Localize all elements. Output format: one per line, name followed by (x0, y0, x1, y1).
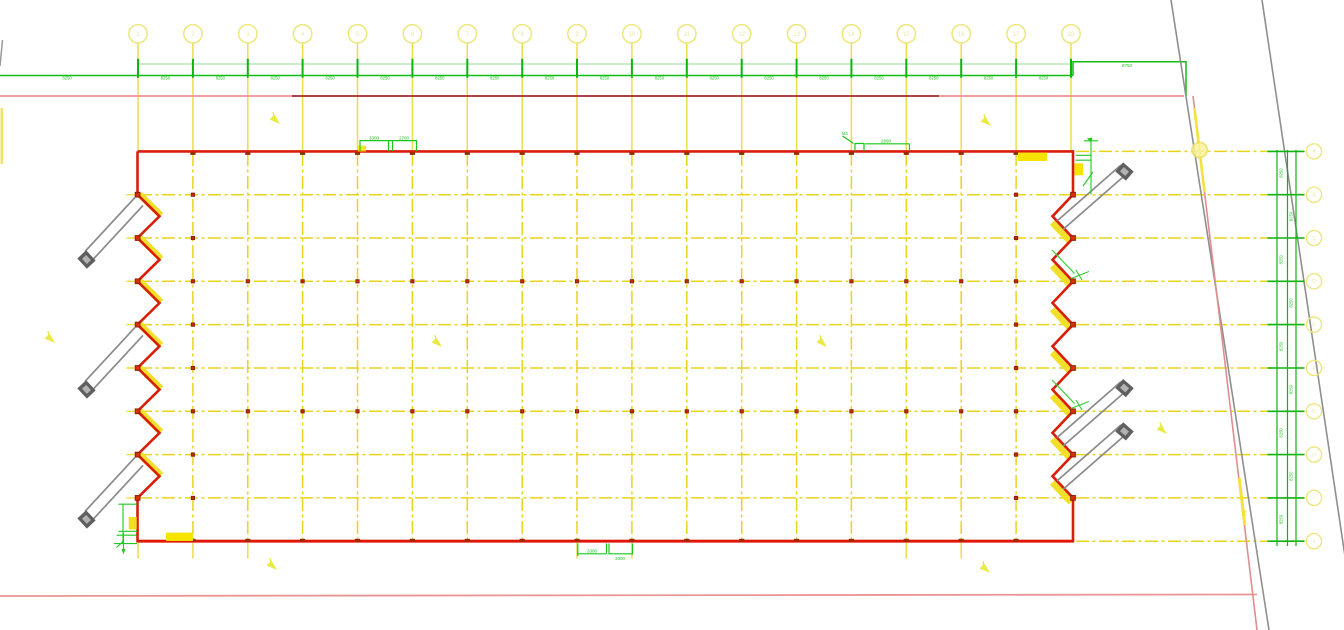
svg-text:8250: 8250 (490, 76, 500, 81)
svg-text:3300: 3300 (369, 136, 380, 141)
svg-text:C: C (1312, 236, 1316, 242)
svg-text:8250: 8250 (1279, 254, 1284, 264)
svg-text:18: 18 (1068, 32, 1075, 38)
svg-text:F: F (1312, 366, 1315, 372)
svg-text:1: 1 (136, 32, 140, 38)
svg-text:8250: 8250 (435, 76, 445, 81)
svg-text:8250: 8250 (929, 76, 939, 81)
svg-text:8250: 8250 (710, 76, 720, 81)
svg-text:3300: 3300 (587, 549, 598, 554)
svg-text:6: 6 (411, 32, 415, 38)
svg-text:8250: 8250 (271, 76, 281, 81)
svg-text:2700: 2700 (399, 136, 410, 141)
svg-text:8250: 8250 (62, 76, 72, 81)
svg-text:8750: 8750 (1122, 63, 1133, 68)
svg-text:3: 3 (246, 32, 250, 38)
svg-text:8250: 8250 (1289, 211, 1294, 221)
svg-text:4: 4 (301, 32, 305, 38)
svg-text:A: A (1312, 149, 1316, 155)
svg-text:8250: 8250 (1289, 298, 1294, 308)
svg-text:8250: 8250 (655, 76, 665, 81)
svg-text:D: D (1312, 279, 1316, 285)
svg-text:8250: 8250 (600, 76, 610, 81)
svg-text:9: 9 (575, 32, 579, 38)
svg-text:2: 2 (191, 32, 195, 38)
svg-text:8250: 8250 (874, 76, 884, 81)
svg-text:8250: 8250 (1279, 168, 1284, 178)
svg-text:14: 14 (848, 32, 855, 38)
svg-text:11: 11 (684, 32, 691, 38)
svg-text:8250: 8250 (1279, 428, 1284, 438)
svg-text:8250: 8250 (764, 76, 774, 81)
svg-text:16: 16 (958, 32, 965, 38)
svg-text:8250: 8250 (984, 76, 994, 81)
svg-text:5: 5 (356, 32, 360, 38)
svg-text:8250: 8250 (1279, 514, 1284, 524)
svg-text:8250: 8250 (1289, 384, 1294, 394)
svg-text:2890: 2890 (881, 138, 892, 143)
svg-text:13: 13 (793, 32, 800, 38)
svg-text:8250: 8250 (1039, 76, 1049, 81)
svg-text:H: H (1312, 452, 1316, 458)
svg-text:8250: 8250 (1279, 341, 1284, 351)
svg-text:8250: 8250 (545, 76, 555, 81)
svg-text:15: 15 (903, 32, 910, 38)
svg-text:8: 8 (521, 32, 525, 38)
svg-text:8250: 8250 (325, 76, 335, 81)
svg-text:17: 17 (1013, 32, 1020, 38)
svg-text:8250: 8250 (161, 76, 171, 81)
svg-text:8250: 8250 (216, 76, 226, 81)
svg-text:J: J (1313, 539, 1316, 545)
svg-text:E: E (1312, 322, 1316, 328)
svg-text:I: I (1313, 496, 1314, 502)
svg-text:G: G (1312, 409, 1316, 415)
svg-text:8250: 8250 (380, 76, 390, 81)
svg-text:8250: 8250 (1289, 471, 1294, 481)
svg-text:10: 10 (629, 32, 636, 38)
svg-text:7: 7 (466, 32, 470, 38)
svg-text:B: B (1312, 193, 1316, 199)
svg-text:24: 24 (1242, 510, 1249, 517)
svg-text:8250: 8250 (819, 76, 829, 81)
svg-text:12: 12 (738, 32, 745, 38)
svg-text:M1: M1 (842, 131, 849, 136)
svg-text:3300: 3300 (615, 556, 626, 561)
